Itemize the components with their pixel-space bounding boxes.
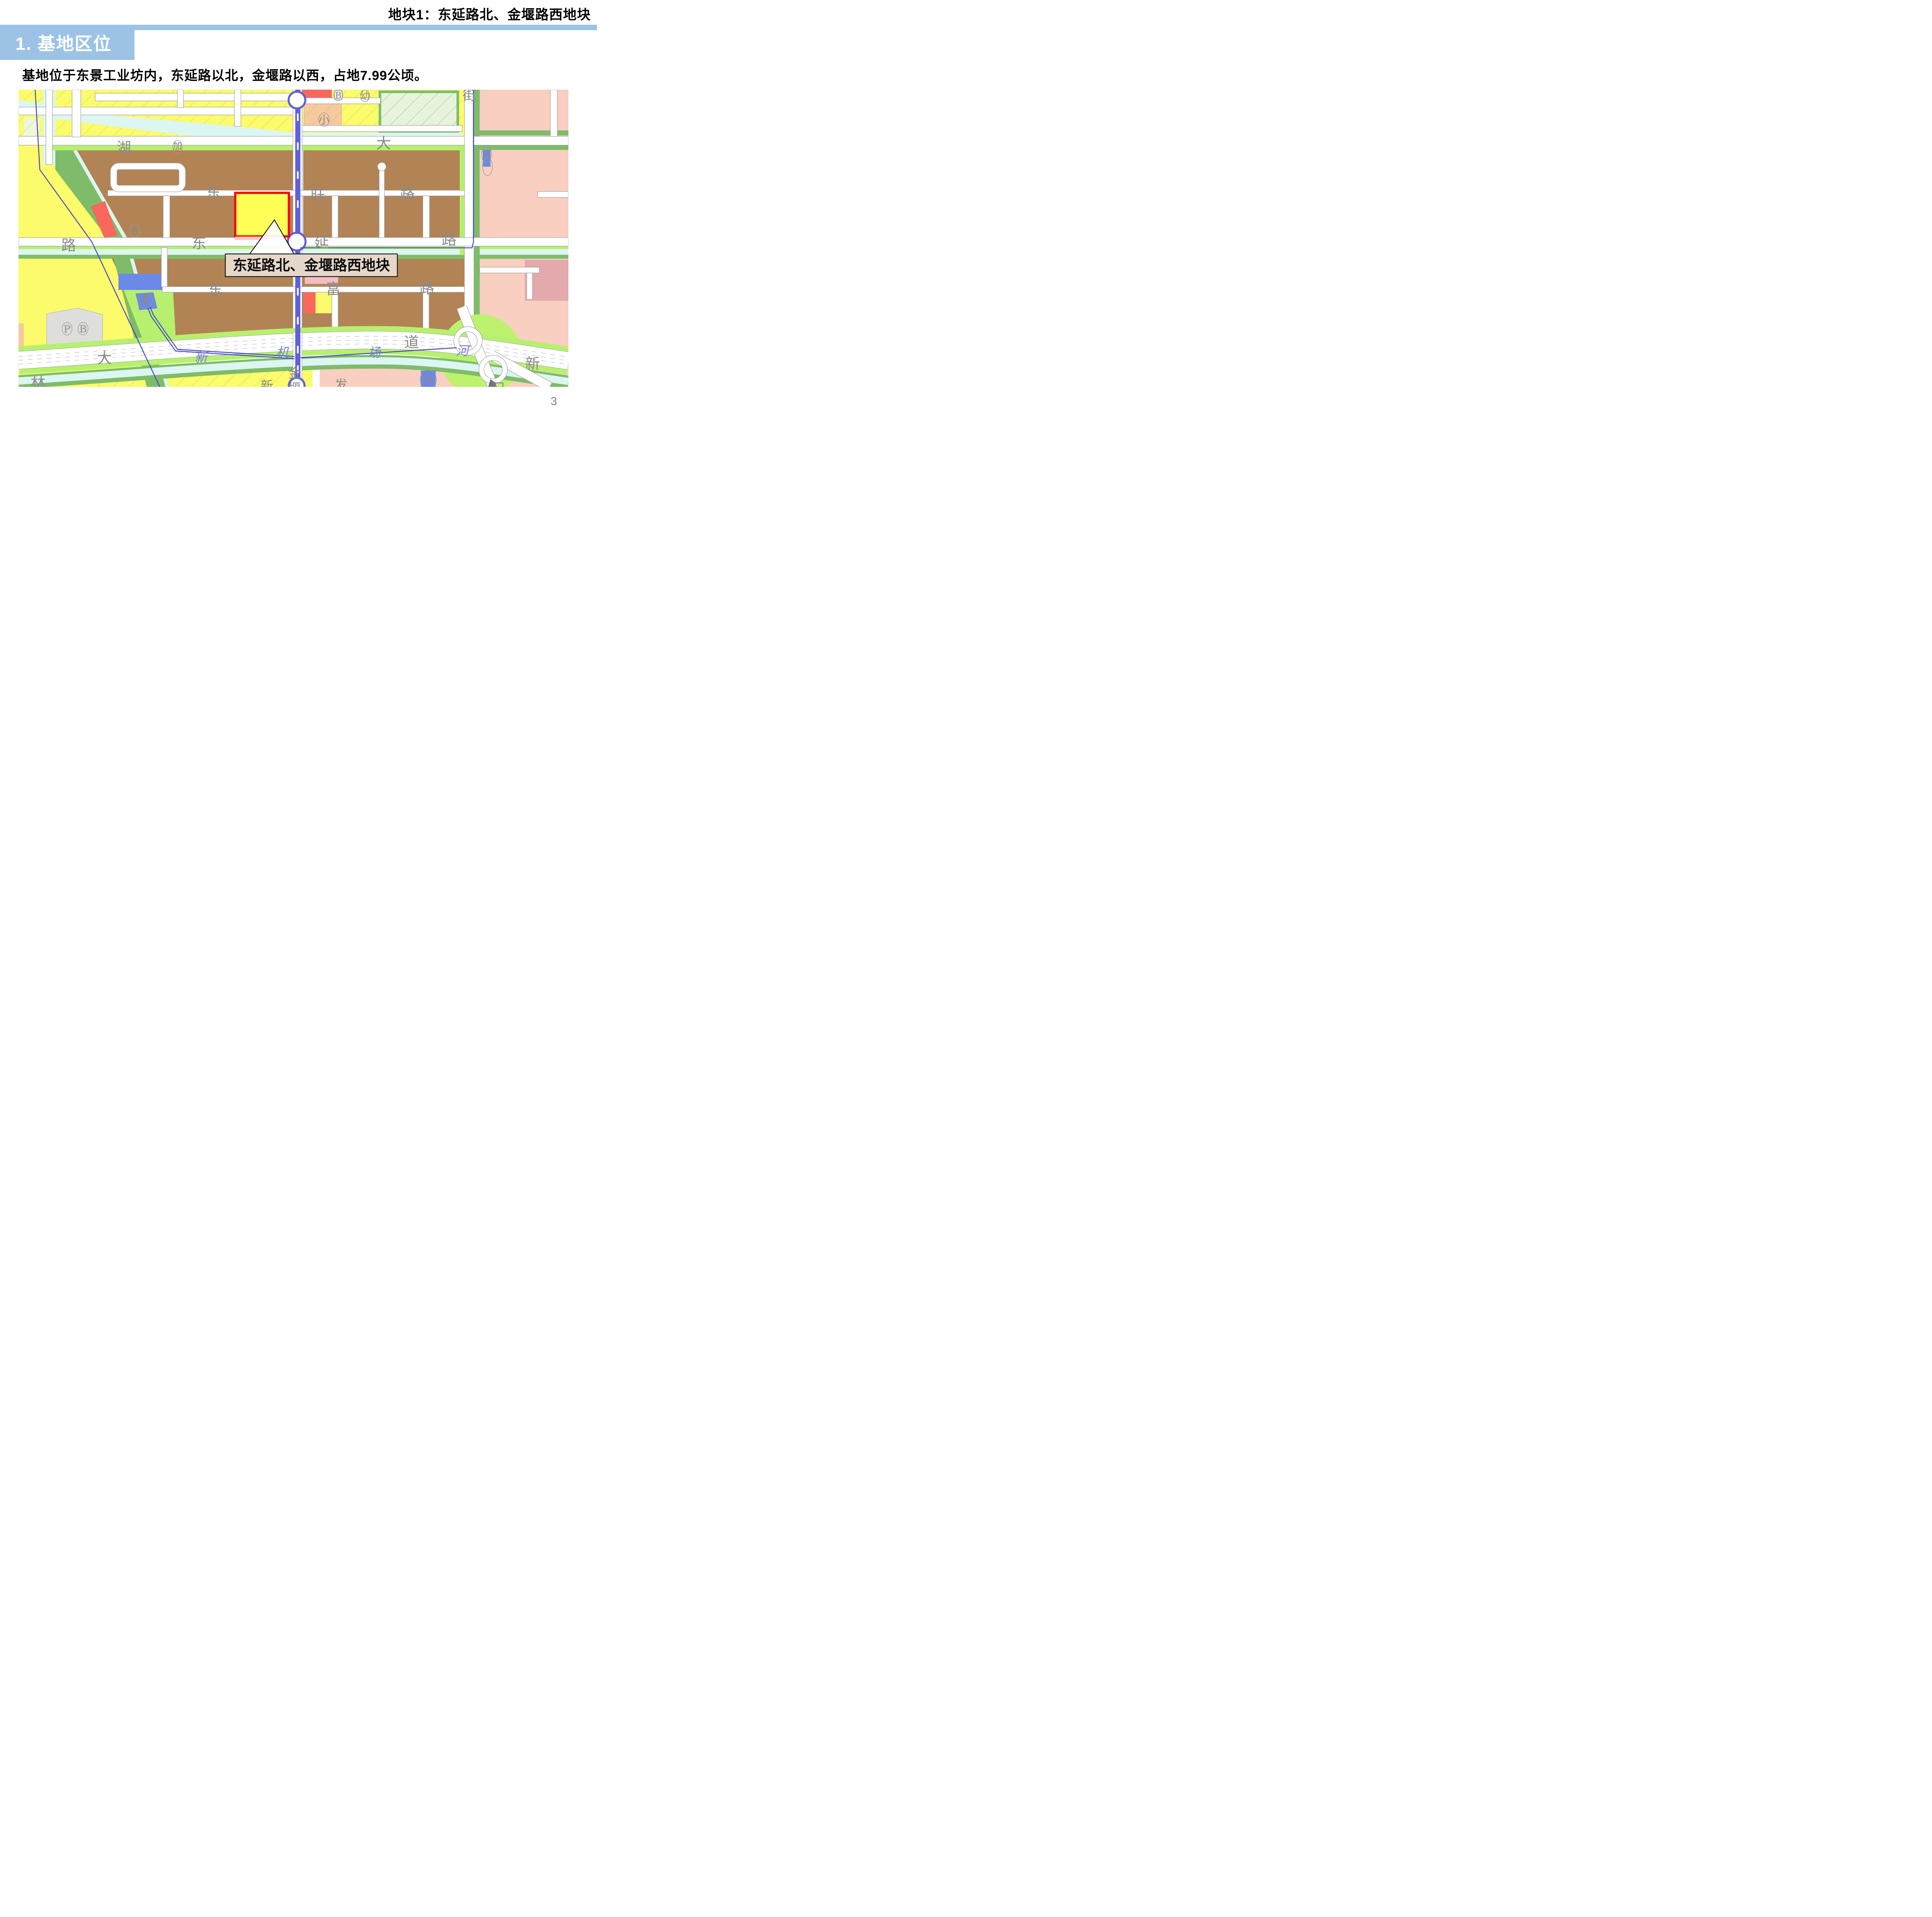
telecom-label: 电	[419, 384, 430, 387]
road-label: 新	[525, 355, 540, 373]
road-label: 东	[207, 281, 223, 298]
biz-label: B	[131, 226, 138, 237]
road-label: 东	[192, 235, 207, 252]
zoning-map: 东延路北、金堰路西地块 湖 加 B 幼 小 街 大 污 东 旺 路 东 延 路 …	[19, 90, 568, 387]
road-label: 金	[288, 366, 301, 381]
primary-school-label: 小	[318, 113, 330, 126]
callout-label: 东延路北、金堰路西地块	[233, 257, 390, 273]
road-label: 旺	[311, 187, 326, 204]
road-label: 湖	[117, 139, 131, 156]
river-label: 新	[195, 350, 209, 365]
site-plot-highlight	[235, 193, 289, 237]
section-title-block: 1. 基地区位	[0, 25, 134, 60]
road-label: 大	[376, 135, 391, 152]
parking-label: P	[64, 323, 70, 335]
road-label: 林	[31, 375, 46, 387]
road-label: 路	[61, 237, 77, 254]
page-number: 3	[551, 395, 557, 408]
road-label: 堰	[288, 381, 301, 387]
sewage-plant-label: 污	[482, 150, 491, 160]
road-label: 路	[442, 231, 457, 249]
kindergarten-label: 幼	[360, 90, 370, 102]
biz-label: B	[80, 323, 87, 335]
road-label: 道	[404, 334, 419, 351]
river-label: 场	[368, 345, 382, 360]
river-label: 机	[276, 345, 289, 360]
biz-label: B	[335, 91, 342, 101]
road-label: 街	[463, 90, 475, 103]
slide-tag-title: 地块1：东延路北、金堰路西地块	[388, 4, 591, 24]
area-label: 日	[493, 380, 505, 387]
road-label: 富	[326, 281, 341, 298]
site-description: 基地位于东景工业坊内，东延路以北，金堰路以西，占地7.99公顷。	[22, 65, 428, 84]
gas-station-label: 加	[173, 141, 182, 152]
zoning-map-svg: 东延路北、金堰路西地块 湖 加 B 幼 小 街 大 污 东 旺 路 东 延 路 …	[19, 90, 568, 387]
road-label: 新	[260, 378, 273, 387]
road-label: 东	[206, 184, 221, 202]
slide: 地块1：东延路北、金堰路西地块 1. 基地区位 基地位于东景工业坊内，东延路以北…	[0, 0, 597, 422]
road-label: 延	[314, 234, 329, 251]
section-title: 1. 基地区位	[0, 30, 112, 55]
metro-station-icon	[289, 92, 305, 108]
area-label: 发	[335, 377, 347, 387]
road-label: 大	[97, 350, 112, 367]
road-label: 路	[420, 280, 435, 297]
road-label: 路	[400, 185, 415, 202]
